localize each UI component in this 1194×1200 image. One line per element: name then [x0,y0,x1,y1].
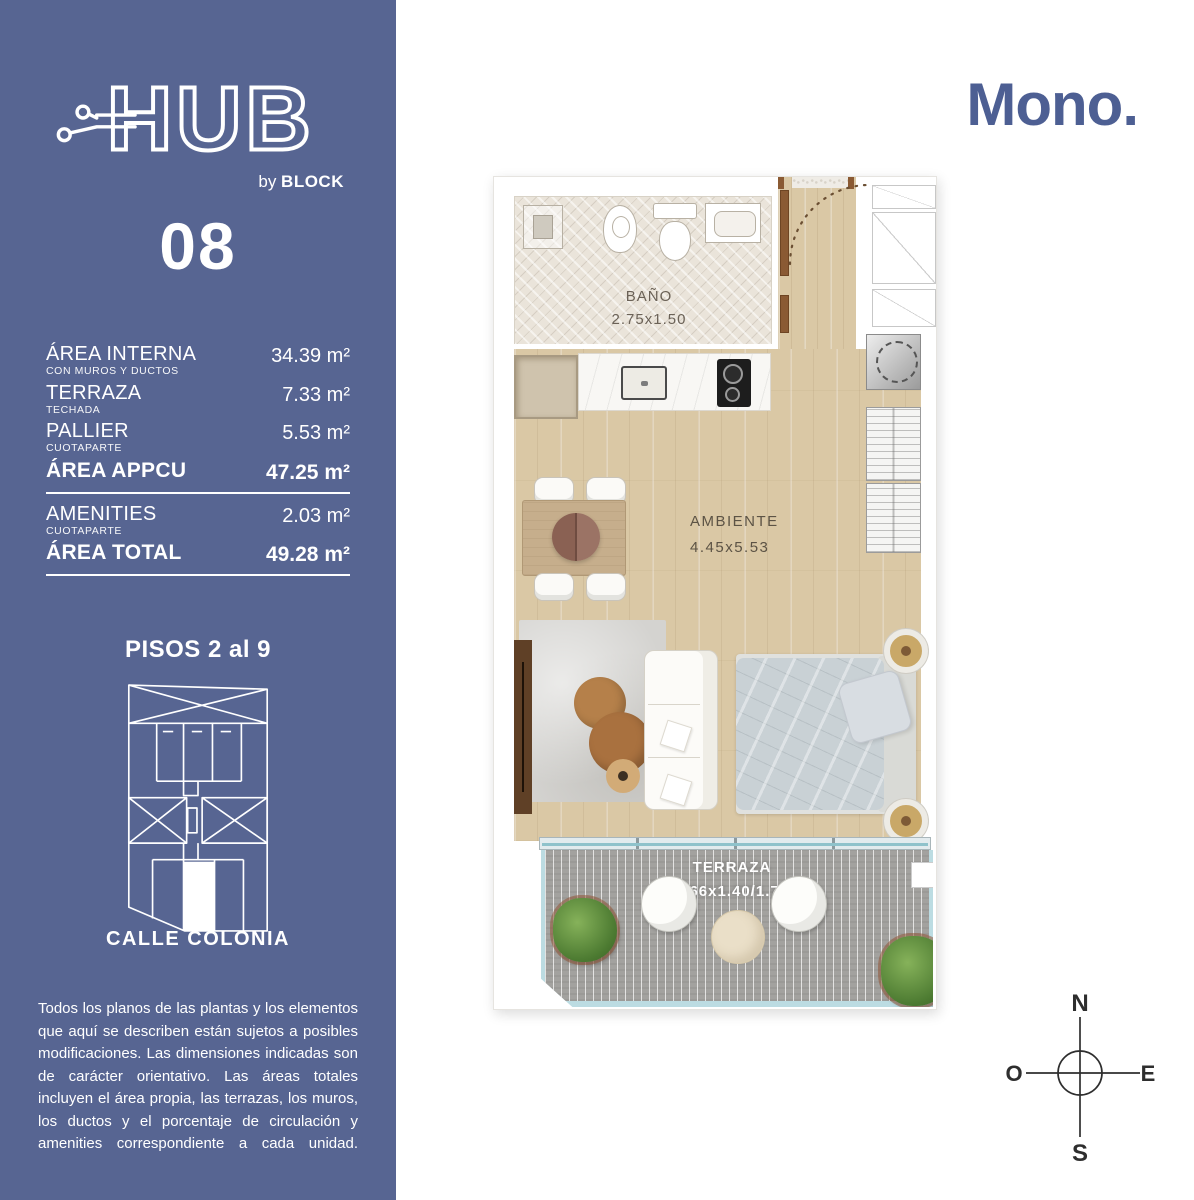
sliding-glass-door [539,837,931,850]
door-frame [734,838,737,849]
cooktop-icon [717,359,751,407]
compass-north: N [1071,990,1088,1017]
dining-chair [586,573,626,601]
area-label: ÁREA TOTAL [46,542,182,564]
entry-hall [778,177,856,349]
hub-logo: HUB [48,58,348,176]
room-name: BAÑO [579,285,719,308]
keyplan-elevator [188,808,197,833]
terrace-table [711,910,765,964]
logo-byline: by BLOCK [48,172,348,192]
door-jamb [848,177,854,189]
sofa-pillow [660,720,693,753]
closet [872,185,936,209]
area-label: ÁREA APPCU [46,460,186,482]
closet [872,289,936,327]
area-row-amenities: AMENITIES CUOTAPARTE 2.03 m² [46,504,350,538]
keyplan-corridor [184,781,198,795]
unit-number: 08 [0,208,396,284]
tv-console [514,640,532,814]
bed [736,654,916,814]
keyplan-corridor-2 [184,843,198,860]
main-room-label: AMBIENTE 4.45x5.53 [690,509,840,560]
brochure-page: HUB by BLOCK 08 ÁREA INTERNA CON MUROS Y… [0,0,1194,1200]
burner-icon [723,364,743,384]
compass-west: O [1005,1061,1022,1086]
sidebar: HUB by BLOCK 08 ÁREA INTERNA CON MUROS Y… [0,0,396,1200]
bathroom-sink-icon [705,203,761,243]
area-value: 2.03 m² [282,504,350,528]
keyplan-upper-units [157,723,242,781]
washing-machine-icon [866,334,921,390]
table-centerpiece [552,513,600,561]
door-jamb [778,177,784,189]
area-value: 49.28 m² [266,542,350,567]
byline-by: by [258,172,281,191]
building-keyplan-diagram [123,682,273,934]
terrace: TERRAZA 4.66x1.40/1.75 [541,850,933,1007]
bathroom-label: BAÑO 2.75x1.50 [579,285,719,332]
area-sublabel: CON MUROS Y DUCTOS [46,365,196,378]
shelving-unit [866,483,921,553]
sofa [644,650,718,810]
plant [553,898,617,962]
divider [46,574,350,576]
area-label: PALLIER [46,421,129,442]
area-value: 5.53 m² [282,421,350,445]
toilet-icon [653,203,697,219]
entry-door-icon [780,190,789,276]
compass-east: E [1141,1061,1156,1086]
shower-icon [523,205,563,249]
area-row-interna: ÁREA INTERNA CON MUROS Y DUCTOS 34.39 m² [46,344,350,378]
compass-south: S [1072,1140,1088,1167]
shelving-unit [866,407,921,481]
byline-block: BLOCK [281,172,344,191]
door-frame [636,838,639,849]
area-value: 7.33 m² [282,383,350,407]
room-name: AMBIENTE [690,509,840,535]
area-sublabel: CUOTAPARTE [46,442,129,455]
room-dimensions: 4.45x5.53 [690,535,840,561]
terrace-drain [911,862,935,888]
area-label: ÁREA INTERNA [46,344,196,365]
area-row-pallier: PALLIER CUOTAPARTE 5.53 m² [46,421,350,455]
side-stool [606,759,640,793]
closet [872,212,936,284]
unit-type-title: Mono. [966,70,1138,139]
area-table: ÁREA INTERNA CON MUROS Y DUCTOS 34.39 m²… [46,344,350,586]
bidet-icon [603,205,637,253]
room-name: TERRAZA [657,856,807,880]
room-dimensions: 2.75x1.50 [579,308,719,331]
logo-text: HUB [107,68,315,169]
kitchen-sink-icon [621,366,667,400]
compass-rose: N S O E [1002,990,1158,1168]
area-sublabel: TECHADA [46,404,141,417]
keyplan-top-xbox [129,685,267,723]
bathroom-door-icon [780,295,789,333]
terrace-deck: TERRAZA 4.66x1.40/1.75 [545,850,929,1001]
area-label: TERRAZA [46,383,141,404]
area-row-terraza: TERRAZA TECHADA 7.33 m² [46,383,350,417]
keyplan-highlighted-unit [184,862,215,931]
street-label: CALLE COLONIA [0,928,396,951]
area-value: 34.39 m² [271,344,350,368]
area-sublabel: CUOTAPARTE [46,525,157,538]
kitchen-cabinet [514,355,578,419]
logo-circuit-dot-2 [77,106,89,118]
plant [881,936,951,1006]
lounge-chair [771,876,827,932]
kitchen-counter [578,353,771,411]
floors-label: PISOS 2 al 9 [0,636,396,664]
floorplan: BAÑO 2.75x1.50 [493,176,937,1010]
bathroom: BAÑO 2.75x1.50 [514,196,772,346]
area-value: 47.25 m² [266,460,350,485]
sofa-pillow [660,774,693,807]
toilet-bowl-icon [659,221,691,261]
burner-icon [725,387,740,402]
area-row-appcu: ÁREA APPCU 47.25 m² [46,460,350,485]
door-frame [832,838,835,849]
bedside-table [884,629,928,673]
logo-circuit-dot-1 [58,129,70,141]
area-label: AMENITIES [46,504,157,525]
lounge-chair [641,876,697,932]
area-row-total: ÁREA TOTAL 49.28 m² [46,542,350,567]
pallier-floor [792,177,854,188]
dining-chair [534,573,574,601]
disclaimer-text: Todos los planos de las plantas y los el… [38,998,358,1156]
divider [46,492,350,494]
